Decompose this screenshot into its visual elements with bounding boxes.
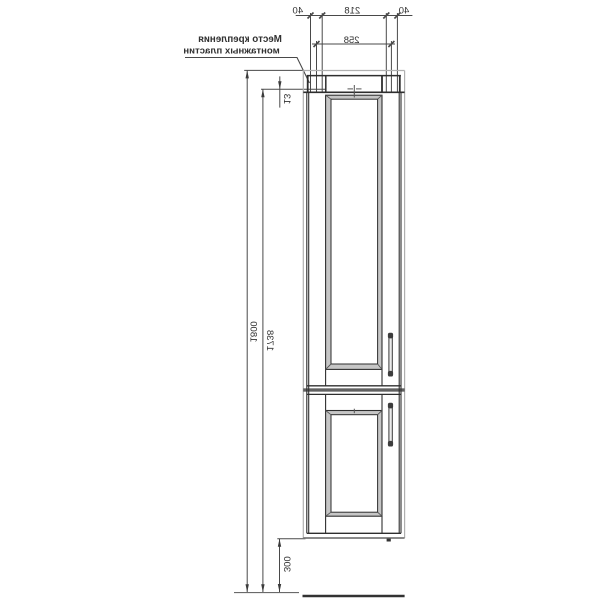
svg-text:218: 218 — [344, 5, 360, 16]
svg-text:40: 40 — [399, 5, 410, 16]
svg-text:Место крепления: Место крепления — [198, 34, 282, 45]
svg-text:40: 40 — [293, 5, 304, 16]
svg-text:300: 300 — [281, 556, 292, 572]
svg-text:13: 13 — [281, 94, 292, 105]
svg-text:1800: 1800 — [247, 321, 258, 342]
svg-text:монтажных пластин: монтажных пластин — [183, 46, 280, 57]
svg-text:258: 258 — [344, 35, 360, 46]
svg-text:1738: 1738 — [264, 330, 275, 351]
